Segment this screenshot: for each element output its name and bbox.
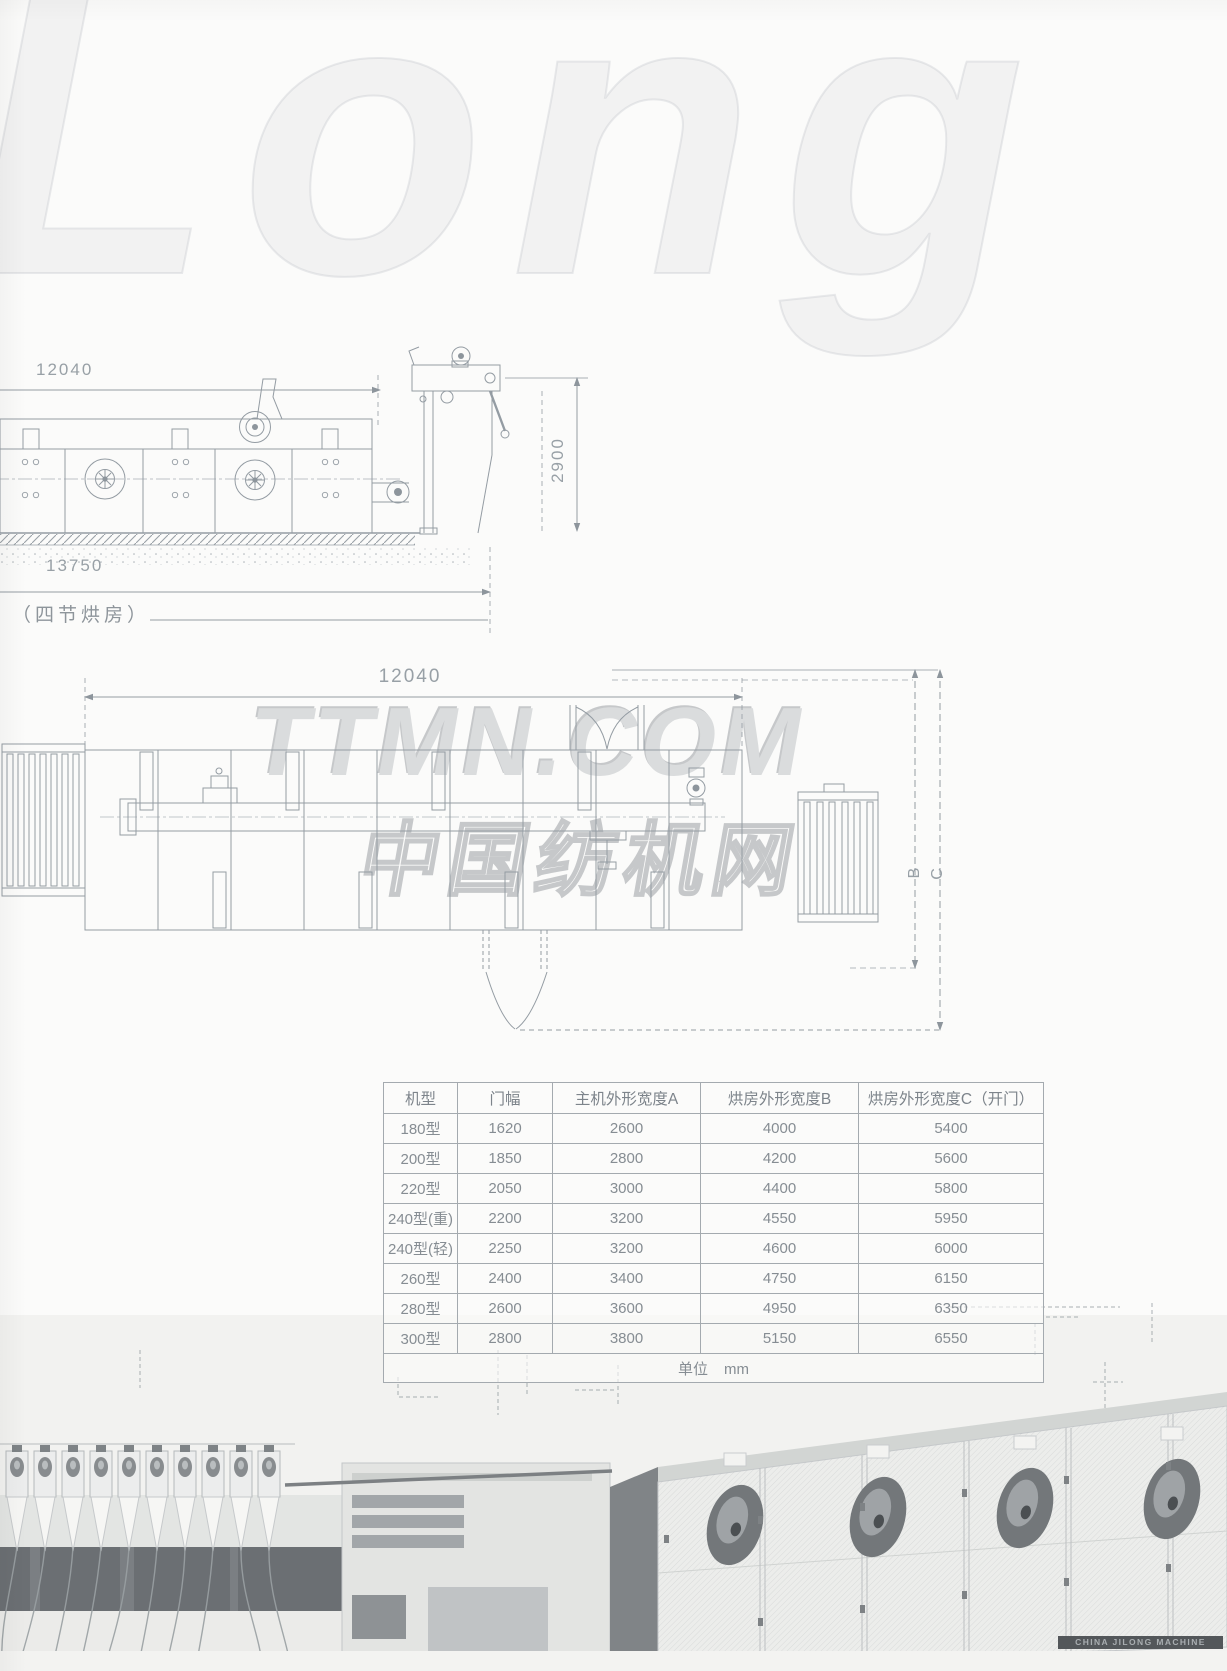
- spec-cell: 2600: [553, 1114, 701, 1144]
- spec-cell: 220型: [384, 1174, 458, 1204]
- unit-row: 单位mm: [384, 1354, 1044, 1383]
- spec-cell: 240型(轻): [384, 1234, 458, 1264]
- plan-dim-length: 12040: [360, 666, 460, 688]
- side-view-caption: （四节烘房）: [12, 600, 150, 627]
- spec-header: 烘房外形宽度B: [701, 1083, 859, 1114]
- spec-cell: 6350: [859, 1294, 1044, 1324]
- side-dim-height-line: [505, 378, 588, 531]
- spec-cell: 4550: [701, 1204, 859, 1234]
- catalog-page: Long: [0, 0, 1227, 1671]
- roof-duct: [0, 419, 372, 449]
- side-machine-body: [0, 449, 400, 533]
- roller-battery-right: [798, 784, 878, 922]
- spec-cell: 3000: [553, 1174, 701, 1204]
- spec-cell: 4950: [701, 1294, 859, 1324]
- spec-cell: 280型: [384, 1294, 458, 1324]
- spec-cell: 4600: [701, 1234, 859, 1264]
- spec-cell: 4200: [701, 1144, 859, 1174]
- spec-cell: 5800: [859, 1174, 1044, 1204]
- spec-cell: 300型: [384, 1324, 458, 1354]
- blower-icon: [240, 379, 283, 443]
- side-dim-total: 13750: [46, 556, 103, 576]
- spec-header: 机型: [384, 1083, 458, 1114]
- roller-battery-left: [2, 744, 85, 896]
- spec-cell: 2800: [553, 1144, 701, 1174]
- spec-cell: 200型: [384, 1144, 458, 1174]
- table-row: 240型(重) 2200 3200 4550 5950: [384, 1204, 1044, 1234]
- spec-header: 烘房外形宽度C（开门）: [859, 1083, 1044, 1114]
- spec-cell: 6550: [859, 1324, 1044, 1354]
- spec-cell: 6150: [859, 1264, 1044, 1294]
- spec-table: 机型 门幅 主机外形宽度A 烘房外形宽度B 烘房外形宽度C（开门） 180型 1…: [383, 1082, 1044, 1383]
- unit-label: 单位: [678, 1361, 708, 1378]
- spec-cell: 240型(重): [384, 1204, 458, 1234]
- side-dim-height: 2900: [548, 428, 568, 492]
- table-row: 200型 1850 2800 4200 5600: [384, 1144, 1044, 1174]
- spec-header-row: 机型 门幅 主机外形宽度A 烘房外形宽度B 烘房外形宽度C（开门）: [384, 1083, 1044, 1114]
- table-row: 220型 2050 3000 4400 5800: [384, 1174, 1044, 1204]
- spec-cell: 1850: [458, 1144, 553, 1174]
- center-beam: [100, 768, 725, 869]
- spec-header: 门幅: [458, 1083, 553, 1114]
- table-row: 180型 1620 2600 4000 5400: [384, 1114, 1044, 1144]
- table-row: 260型 2400 3400 4750 6150: [384, 1264, 1044, 1294]
- spec-cell: 4750: [701, 1264, 859, 1294]
- spec-cell: 3200: [553, 1204, 701, 1234]
- plan-dim-length-line: [85, 678, 742, 748]
- spec-cell: 4400: [701, 1174, 859, 1204]
- spec-cell: 3600: [553, 1294, 701, 1324]
- spec-cell: 260型: [384, 1264, 458, 1294]
- spec-header: 主机外形宽度A: [553, 1083, 701, 1114]
- spec-cell: 2400: [458, 1264, 553, 1294]
- spec-cell: 5150: [701, 1324, 859, 1354]
- table-row: 240型(轻) 2250 3200 4600 6000: [384, 1234, 1044, 1264]
- spec-cell: 2800: [458, 1324, 553, 1354]
- spec-cell: 3800: [553, 1324, 701, 1354]
- unit-cell: 单位mm: [384, 1354, 1044, 1383]
- spec-cell: 5400: [859, 1114, 1044, 1144]
- plan-view-drawing: [0, 618, 980, 1038]
- spec-cell: 2250: [458, 1234, 553, 1264]
- padder-frame: [409, 347, 509, 534]
- table-row: 300型 2800 3800 5150 6550: [384, 1324, 1044, 1354]
- door-arcs-bottom: [483, 930, 942, 1030]
- spec-cell: 3400: [553, 1264, 701, 1294]
- brand-bar: CHINA JILONG MACHINE: [1058, 1636, 1223, 1649]
- unit-value: mm: [724, 1361, 749, 1378]
- spec-cell: 2600: [458, 1294, 553, 1324]
- door-arcs-top: [570, 705, 644, 750]
- side-view-drawing: [0, 335, 600, 645]
- table-row: 280型 2600 3600 4950 6350: [384, 1294, 1044, 1324]
- spec-cell: 6000: [859, 1234, 1044, 1264]
- spec-cell: 4000: [701, 1114, 859, 1144]
- background-logo-watermark: Long: [0, 0, 1051, 365]
- side-dim-length: 12040: [36, 360, 93, 380]
- plan-dim-label-c: C: [929, 863, 947, 883]
- spec-cell: 2200: [458, 1204, 553, 1234]
- spec-cell: 2050: [458, 1174, 553, 1204]
- spec-cell: 3200: [553, 1234, 701, 1264]
- connector-pipe: [372, 481, 409, 503]
- dimension-b-line: [612, 670, 938, 968]
- spec-cell: 1620: [458, 1114, 553, 1144]
- spec-cell: 5600: [859, 1144, 1044, 1174]
- plan-machine-body: [85, 750, 742, 930]
- plan-dim-label-b: B: [906, 862, 924, 882]
- spec-cell: 5950: [859, 1204, 1044, 1234]
- spec-cell: 180型: [384, 1114, 458, 1144]
